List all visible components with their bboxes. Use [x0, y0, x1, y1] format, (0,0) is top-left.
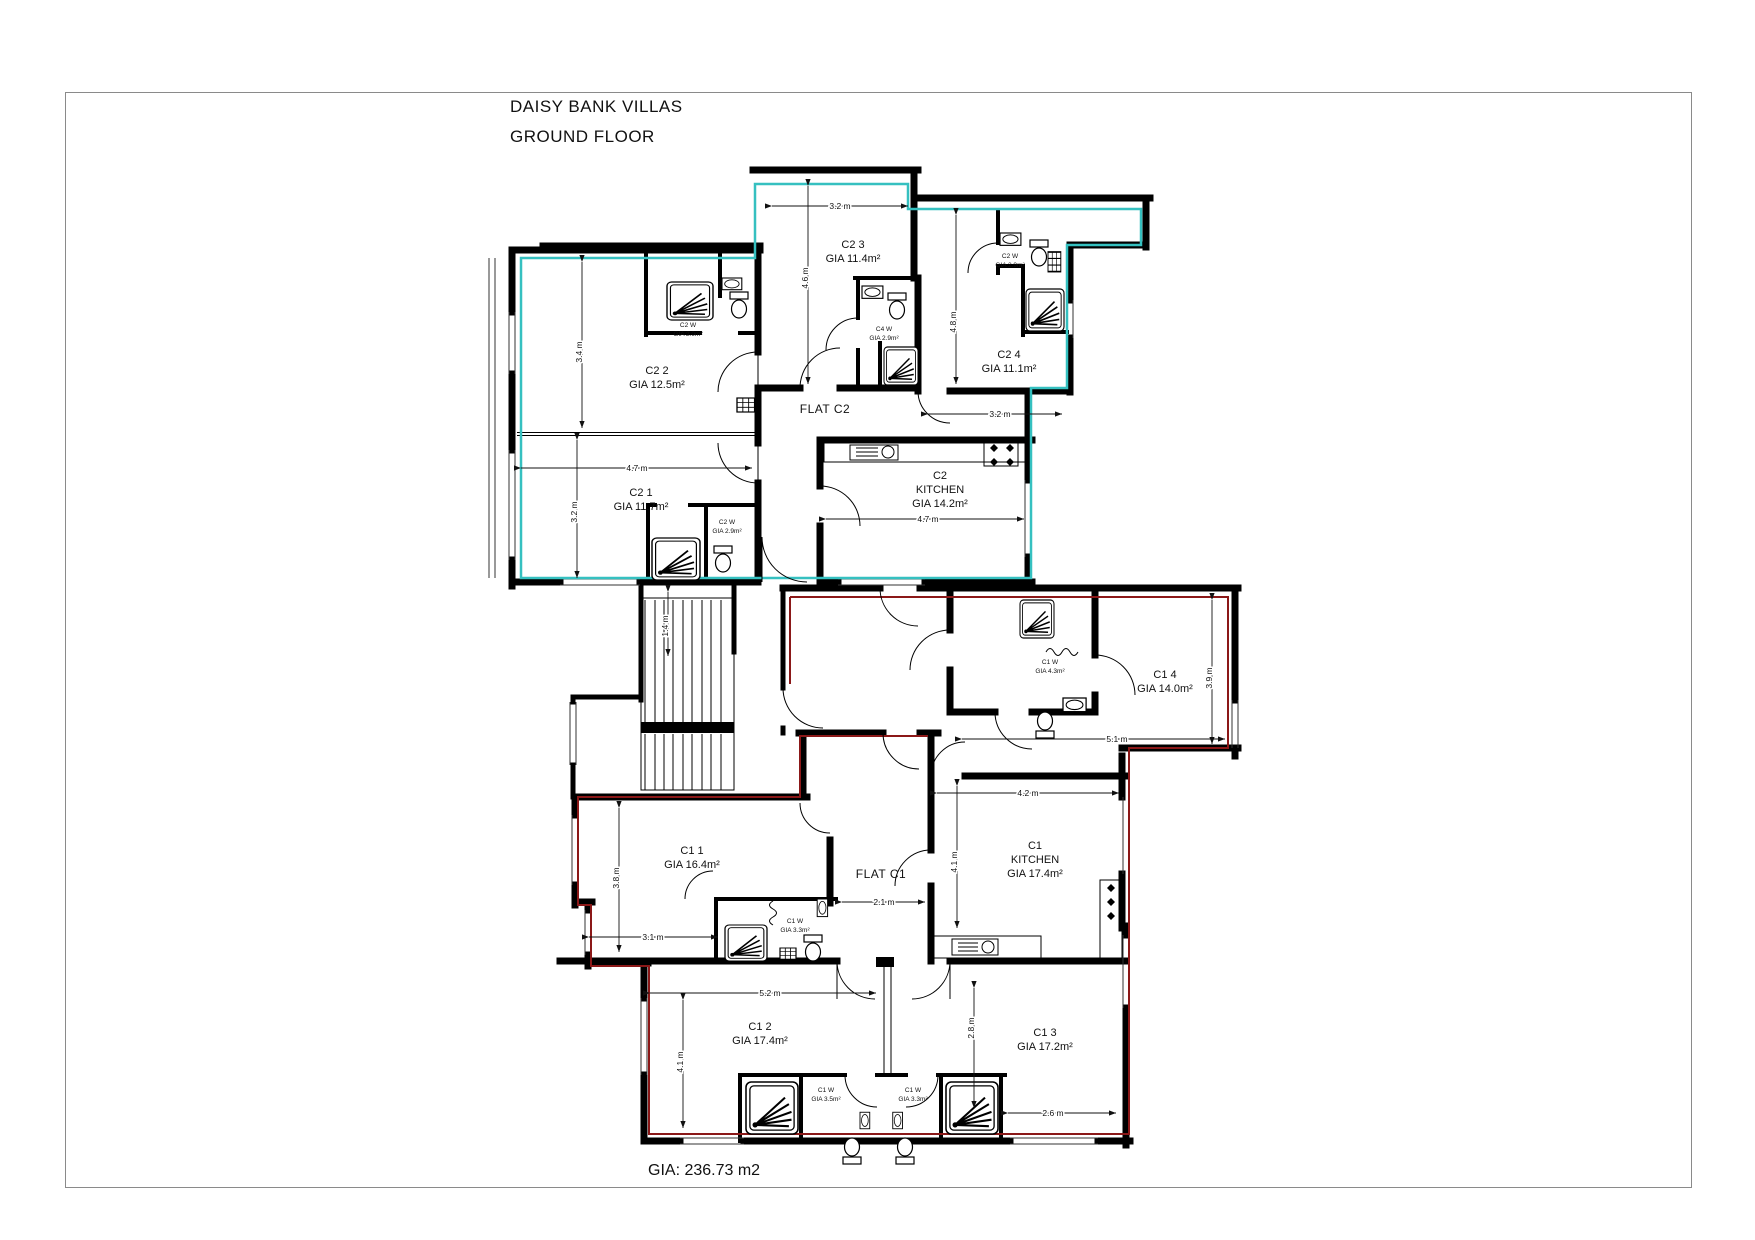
wc-label-c2-3: C4 W [876, 326, 893, 333]
room-label-c1-3: C1 3 [1033, 1027, 1056, 1039]
room-label-c1-kitchen: C1 [1028, 840, 1042, 852]
dim-c2-4-height: 4.8 m [948, 311, 958, 332]
toilet-icon [1030, 240, 1048, 266]
dim-c2-3-width: 3.2 m [829, 201, 850, 211]
room-area-c1-3: GIA 17.2m² [1017, 1041, 1073, 1053]
stairs [641, 598, 734, 790]
kitchen-sink-icon [850, 445, 898, 460]
room-area-c2-2: GIA 12.5m² [629, 379, 685, 391]
shower-icon [746, 1082, 798, 1134]
total-gia: GIA: 236.73 m2 [648, 1162, 760, 1180]
sink-icon [1000, 233, 1021, 245]
appliance-icon [780, 948, 796, 959]
appliance-icon [737, 398, 755, 412]
dim-c1-1-width: 3.1 m [642, 932, 663, 942]
kitchen-sink-icon [952, 939, 998, 955]
wc-area-c1-3: GIA 3.3m² [898, 1096, 928, 1103]
wc-label-c1-4: C1 W [1042, 659, 1059, 666]
sink-icon [817, 899, 827, 917]
shower-icon [667, 282, 713, 320]
wc-label-c2-2: C2 W [680, 322, 697, 329]
toilet-icon [843, 1138, 861, 1164]
room-label-c2-1: C2 1 [629, 487, 652, 499]
room-label-c2-4: C2 4 [997, 349, 1020, 361]
dim-c2-2-height: 3.4 m [574, 341, 584, 362]
room-area-c2-4: GIA 11.1m² [982, 363, 1037, 375]
room-area-c2-3: GIA 11.4m² [826, 253, 881, 265]
dim-c2-4-width: 3.2 m [989, 409, 1010, 419]
toilet-icon [888, 293, 906, 319]
wc-area-c2-1: GIA 2.9m² [712, 528, 742, 535]
dimensions-layer: 3.2 m 4.6 m 3.4 m 4.8 m 3.2 m 4.7 m 3.2 … [521, 186, 1225, 1128]
wc-area-c2-4: GIA 2.9m² [995, 262, 1025, 269]
room-label-c2-2: C2 2 [645, 365, 668, 377]
wc-area-c1-4: GIA 4.3m² [1035, 668, 1065, 675]
dim-c1-4-width: 5.1 m [1106, 734, 1127, 744]
room-label-c1-2: C1 2 [748, 1021, 771, 1033]
wc-label-c2-1: C2 W [719, 519, 736, 526]
toilet-icon [1036, 712, 1054, 738]
shower-icon [725, 925, 767, 961]
toilet-icon [896, 1138, 914, 1164]
wc-area-c1-2: GIA 3.5m² [811, 1096, 841, 1103]
stove-icon [1107, 884, 1115, 920]
room-area-c2-kitchen: GIA 14.2m² [912, 498, 968, 510]
dim-landing: 1.4 m [660, 615, 670, 636]
shower-icon [652, 538, 700, 580]
wc-label-c1-1: C1 W [787, 918, 804, 925]
door-post [876, 957, 894, 967]
wc-label-c1-2: C1 W [818, 1087, 835, 1094]
shower-icon [884, 347, 918, 385]
appliance-icon [1048, 252, 1061, 272]
room-label-c1-1: C1 1 [680, 845, 703, 857]
radiator-icon [1046, 649, 1078, 656]
dim-c2-1-width: 4.7 m [626, 463, 647, 473]
dim-c1-hall-width: 2.1 m [873, 897, 894, 907]
dim-c1-kitchen-width: 4.2 m [1017, 788, 1038, 798]
room-label2-c1-kitchen: KITCHEN [1011, 854, 1059, 866]
dim-c2-3-height: 4.6 m [800, 267, 810, 288]
dim-c1-3-height: 2.8 m [966, 1017, 976, 1038]
dim-c1-2-width: 5.2 m [759, 988, 780, 998]
dim-c2-1-height: 3.2 m [569, 501, 579, 522]
dim-c1-1-height: 3.8 m [611, 867, 621, 888]
sink-icon [893, 1112, 903, 1129]
room-label2-c2-kitchen: KITCHEN [916, 484, 964, 496]
room-label-c2-3: C2 3 [841, 239, 864, 251]
dim-c1-kitchen-height: 4.1 m [949, 851, 959, 872]
room-label-c2-kitchen: C2 [933, 470, 947, 482]
shower-icon [1026, 289, 1064, 331]
sink-icon [1063, 698, 1086, 712]
toilet-icon [804, 935, 822, 961]
sink-icon [722, 278, 742, 290]
counter [824, 443, 1028, 462]
sink-icon [862, 286, 883, 298]
dim-c1-3-width: 2.6 m [1042, 1108, 1063, 1118]
room-area-c1-1: GIA 16.4m² [664, 859, 720, 871]
wc-area-c2-3: GIA 2.9m² [869, 335, 899, 342]
dim-c1-2-height: 4.1 m [675, 1051, 685, 1072]
radiator-icon [770, 901, 777, 925]
toilet-icon [714, 546, 732, 572]
floorplan-svg: 3.2 m 4.6 m 3.4 m 4.8 m 3.2 m 4.7 m 3.2 … [0, 0, 1755, 1240]
toilet-icon [730, 292, 748, 318]
room-area-c1-2: GIA 17.4m² [732, 1035, 788, 1047]
sink-icon [860, 1112, 870, 1129]
flat-label-c1: FLAT C1 [856, 867, 906, 881]
flat-label-c2: FLAT C2 [800, 402, 850, 416]
room-area-c1-kitchen: GIA 17.4m² [1007, 868, 1063, 880]
room-area-c2-1: GIA 11.7m² [614, 501, 669, 513]
dim-c2-kitchen-width: 4.7 m [917, 514, 938, 524]
room-area-c1-4: GIA 14.0m² [1137, 683, 1193, 695]
wc-area-c1-1: GIA 3.3m² [780, 927, 810, 934]
wc-area-c2-2: GIA 2.9m² [673, 331, 703, 338]
dim-c1-4-height: 3.9 m [1204, 667, 1214, 688]
shower-icon [1020, 600, 1054, 638]
shower-icon [946, 1082, 998, 1134]
room-label-c1-4: C1 4 [1153, 669, 1176, 681]
wc-label-c2-4: C2 W [1002, 253, 1019, 260]
wc-label-c1-3: C1 W [905, 1087, 922, 1094]
